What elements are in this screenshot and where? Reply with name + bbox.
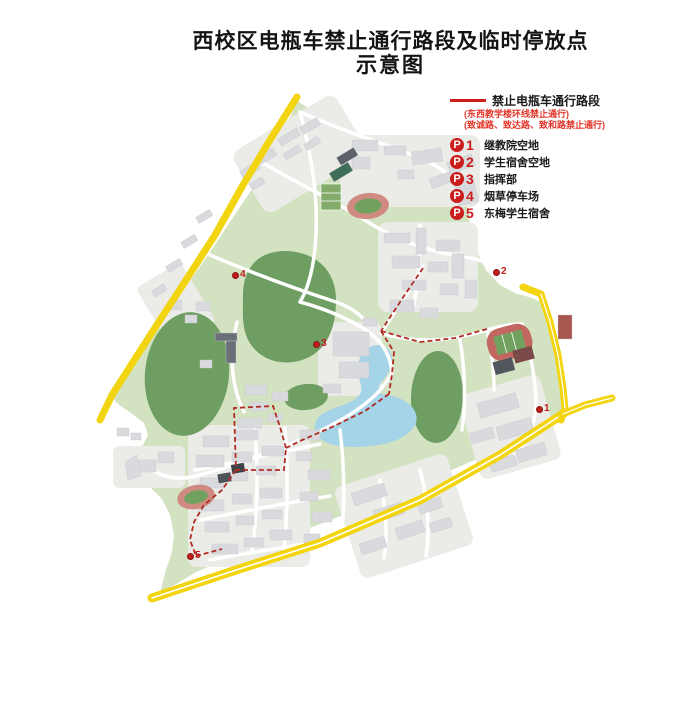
legend-route-row: 禁止电瓶车通行路段: [450, 92, 676, 109]
p5-number: 5: [195, 551, 201, 561]
legend-route-note1: (东西教学楼环线禁止通行): [464, 109, 676, 120]
map-marker-p4: 4: [232, 270, 246, 280]
legend-item-number: 1: [466, 137, 478, 153]
legend-item-number: 2: [466, 154, 478, 170]
p1-dot-icon: [536, 406, 543, 413]
legend-items: P 1 继教院空地 P 2 学生宿舍空地 P 3 指挥部 P 4 烟草停车场 P: [450, 136, 676, 221]
legend-route-label: 禁止电瓶车通行路段: [492, 92, 600, 109]
legend-item-p5: P 5 东梅学生宿舍: [450, 204, 676, 221]
parking-badge-icon: P: [450, 138, 464, 152]
legend: 禁止电瓶车通行路段 (东西教学楼环线禁止通行) (致诚路、致达路、致和路禁止通行…: [450, 92, 676, 221]
map-marker-p1: 1: [536, 404, 550, 414]
p1-number: 1: [544, 404, 550, 414]
legend-item-p1: P 1 继教院空地: [450, 136, 676, 153]
legend-item-label: 学生宿舍空地: [484, 154, 550, 170]
parking-badge-icon: P: [450, 206, 464, 220]
p3-dot-icon: [313, 341, 320, 348]
legend-item-label: 指挥部: [484, 171, 517, 187]
legend-item-label: 烟草停车场: [484, 188, 539, 204]
parking-badge-icon: P: [450, 189, 464, 203]
p4-number: 4: [240, 270, 246, 280]
parking-badge-icon: P: [450, 172, 464, 186]
legend-item-p3: P 3 指挥部: [450, 170, 676, 187]
legend-item-p4: P 4 烟草停车场: [450, 187, 676, 204]
legend-item-label: 东梅学生宿舍: [484, 205, 550, 221]
p2-dot-icon: [493, 269, 500, 276]
parking-badge-icon: P: [450, 155, 464, 169]
p4-dot-icon: [232, 272, 239, 279]
p5-dot-icon: [187, 553, 194, 560]
p2-number: 2: [501, 267, 507, 277]
legend-item-p2: P 2 学生宿舍空地: [450, 153, 676, 170]
legend-route-note2: (致诚路、致达路、致和路禁止通行): [464, 120, 676, 131]
prohibited-route-line-icon: [450, 99, 486, 102]
schematic-map-page: 西校区电瓶车禁止通行路段及临时停放点 示意图: [0, 0, 677, 710]
map-marker-p5: 5: [187, 551, 201, 561]
sports-courts-north: [321, 184, 341, 210]
legend-item-number: 4: [466, 188, 478, 204]
map-marker-p3: 3: [313, 339, 327, 349]
legend-item-label: 继教院空地: [484, 137, 539, 153]
legend-item-number: 3: [466, 171, 478, 187]
p3-number: 3: [321, 339, 327, 349]
map-marker-p2: 2: [493, 267, 507, 277]
legend-item-number: 5: [466, 205, 478, 221]
